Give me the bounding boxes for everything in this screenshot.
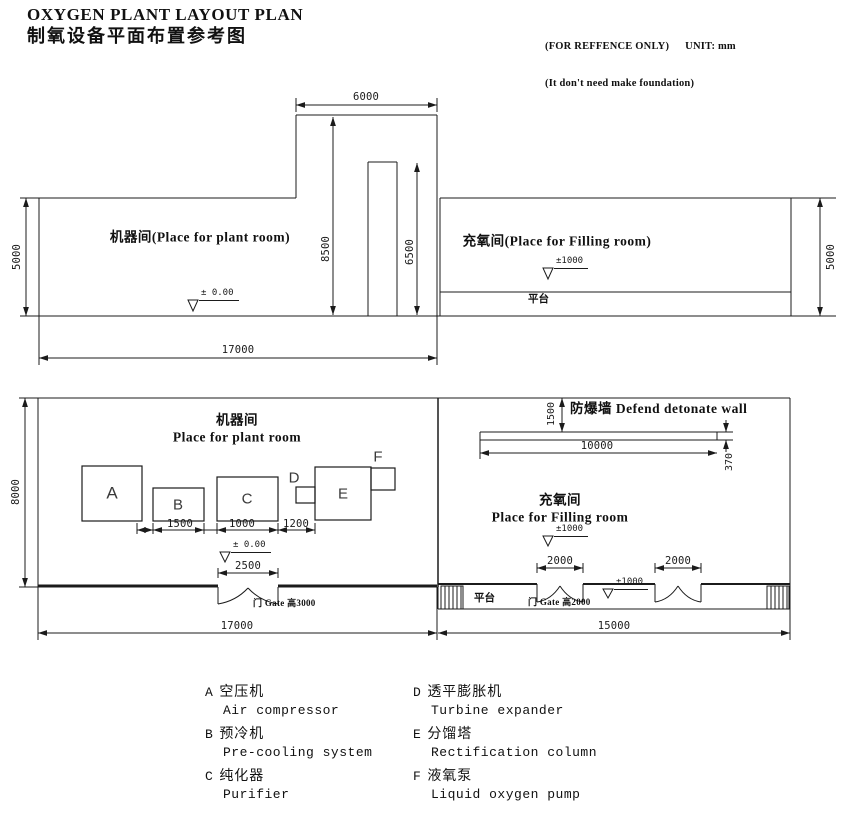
dim-gap-ce: 1200 (283, 519, 309, 530)
note-unit-text: UNIT: mm (685, 41, 736, 52)
equipment-label-F: F (373, 450, 382, 465)
legend-column-2: D透平膨胀机 Turbine expander E分馏塔 Rectificati… (413, 684, 653, 810)
plan-level-1000-room: ±1000 (554, 524, 588, 537)
dim-wall-length: 10000 (581, 441, 614, 452)
equipment-label-D: D (289, 471, 300, 486)
gate-filling-label: 门 Gate 高2000 (528, 598, 591, 607)
dim-door2-width: 2000 (665, 556, 691, 567)
legend-cn-D: 透平膨胀机 (427, 685, 502, 701)
elevation-level-1000: ±1000 (554, 256, 588, 269)
legend-item-C: C纯化器 Purifier (205, 768, 413, 803)
legend-item-D: D透平膨胀机 Turbine expander (413, 684, 653, 719)
level-triangle-zero (188, 300, 198, 311)
legend-item-A: A空压机 Air compressor (205, 684, 413, 719)
page-title-cn: 制氧设备平面布置参考图 (27, 27, 247, 45)
plan-filling-room-cn: 充氧间 (539, 493, 581, 507)
level-triangle-1000-platform (603, 589, 613, 598)
plan-platform-label: 平台 (474, 594, 495, 605)
elevation-level-zero: ± 0.00 (199, 288, 239, 301)
level-triangle-1000-room (543, 536, 553, 546)
oxygen-plant-layout-page: { "header": { "title_en": "OXYGEN PLANT … (0, 0, 847, 817)
note-reference-text: (FOR REFFENCE ONLY) (545, 41, 669, 52)
legend-key-F: F (413, 769, 421, 784)
equipment-label-B: B (173, 498, 183, 513)
plan-plant-room-cn: 机器间 (216, 413, 258, 427)
gate-plant-label: 门 Gate 高3000 (253, 599, 316, 608)
dim-plant-height: 8000 (11, 479, 22, 505)
legend-en-A: Air compressor (223, 702, 413, 719)
legend-key-B: B (205, 727, 213, 742)
legend-cn-F: 液氧泵 (427, 769, 472, 785)
equipment-label-E: E (338, 487, 348, 502)
block-D (296, 487, 315, 503)
dim-gap-bc: 1000 (229, 519, 255, 530)
dim-tower-width: 6000 (353, 92, 379, 103)
equipment-label-C: C (242, 492, 253, 507)
legend-cn-E: 分馏塔 (427, 727, 472, 743)
dim-wall-thickness: 370 (725, 453, 735, 471)
level-triangle-1000 (543, 268, 553, 279)
plan-drawing (19, 398, 790, 640)
legend-item-F: F液氧泵 Liquid oxygen pump (413, 768, 653, 803)
dim-plant-width-elevation: 17000 (222, 345, 255, 356)
legend-item-E: E分馏塔 Rectification column (413, 726, 653, 761)
note-foundation: (It don't need make foundation) (545, 79, 694, 90)
door-filling-2 (655, 584, 701, 602)
dim-tower-height: 8500 (321, 236, 332, 262)
block-F (371, 468, 395, 490)
equipment-blocks (82, 466, 395, 521)
legend-en-B: Pre-cooling system (223, 744, 413, 761)
dim-door1-width: 2000 (547, 556, 573, 567)
page-title-en: OXYGEN PLANT LAYOUT PLAN (27, 6, 303, 23)
dim-right-height: 5000 (826, 244, 837, 270)
level-triangle-zero-plan (220, 552, 230, 562)
legend-column-1: A空压机 Air compressor B预冷机 Pre-cooling sys… (205, 684, 413, 810)
legend-key-C: C (205, 769, 213, 784)
dim-gap-ab: 1500 (167, 519, 193, 530)
legend-cn-B: 预冷机 (219, 727, 264, 743)
equipment-label-A: A (106, 485, 117, 502)
legend-en-C: Purifier (223, 786, 413, 803)
elevation-platform-label: 平台 (528, 295, 549, 306)
plan-level-1000-platform: ±1000 (614, 577, 648, 590)
plan-level-zero: ± 0.00 (231, 540, 271, 553)
legend-en-F: Liquid oxygen pump (431, 786, 653, 803)
plan-plant-room-en: Place for plant room (173, 430, 301, 444)
legend-cn-A: 空压机 (219, 685, 264, 701)
dim-column-height: 6500 (405, 239, 416, 265)
dim-plant-width-plan: 17000 (221, 621, 254, 632)
legend-key-D: D (413, 685, 421, 700)
plan-filling-room-en: Place for Filling room (492, 510, 629, 524)
legend-key-E: E (413, 727, 421, 742)
dim-wall-offset: 1500 (547, 402, 557, 426)
dim-left-height: 5000 (12, 244, 23, 270)
legend-key-A: A (205, 685, 213, 700)
note-reference: (FOR REFFENCE ONLY)UNIT: mm (545, 42, 736, 53)
legend-en-D: Turbine expander (431, 702, 653, 719)
dim-gate-width: 2500 (235, 561, 261, 572)
legend-cn-C: 纯化器 (219, 769, 264, 785)
elevation-filling-room-label: 充氧间(Place for Filling room) (463, 234, 652, 248)
defend-wall-label: 防爆墙 Defend detonate wall (570, 402, 747, 416)
legend-en-E: Rectification column (431, 744, 653, 761)
elevation-plant-room-label: 机器间(Place for plant room) (110, 230, 290, 244)
dim-filling-width: 15000 (598, 621, 631, 632)
legend-item-B: B预冷机 Pre-cooling system (205, 726, 413, 761)
platform-hatch-left (441, 586, 463, 609)
platform-hatch-right (767, 586, 789, 609)
